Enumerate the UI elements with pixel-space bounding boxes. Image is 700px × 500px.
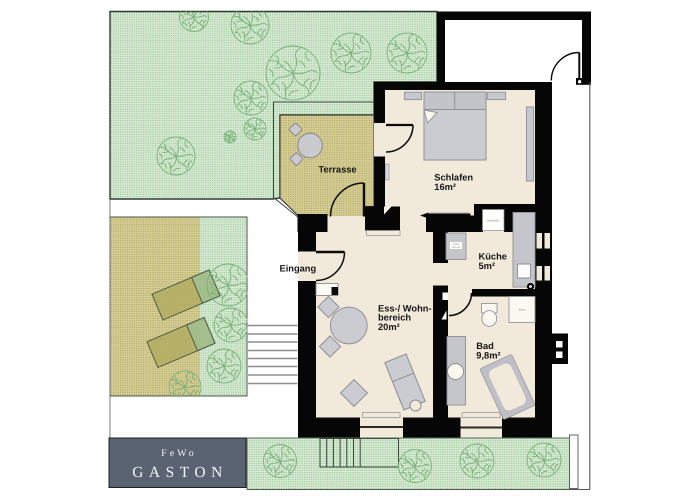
svg-text:Schlafen: Schlafen [434, 173, 473, 183]
svg-text:Garderobe: Garderobe [487, 220, 500, 223]
svg-text:Eingang: Eingang [280, 264, 317, 274]
svg-text:16m²: 16m² [434, 182, 456, 192]
svg-text:9,8m²: 9,8m² [476, 351, 500, 361]
svg-text:Küche: Küche [479, 252, 507, 262]
svg-text:Terrasse: Terrasse [319, 165, 357, 175]
svg-text:FeWo: FeWo [161, 448, 197, 459]
svg-text:schrank: schrank [452, 246, 461, 249]
svg-text:Bad: Bad [476, 341, 494, 351]
svg-text:GASTON: GASTON [132, 464, 228, 481]
svg-text:WaMa: WaMa [519, 309, 526, 312]
svg-text:20m²: 20m² [378, 322, 400, 332]
svg-text:5m²: 5m² [479, 261, 496, 271]
